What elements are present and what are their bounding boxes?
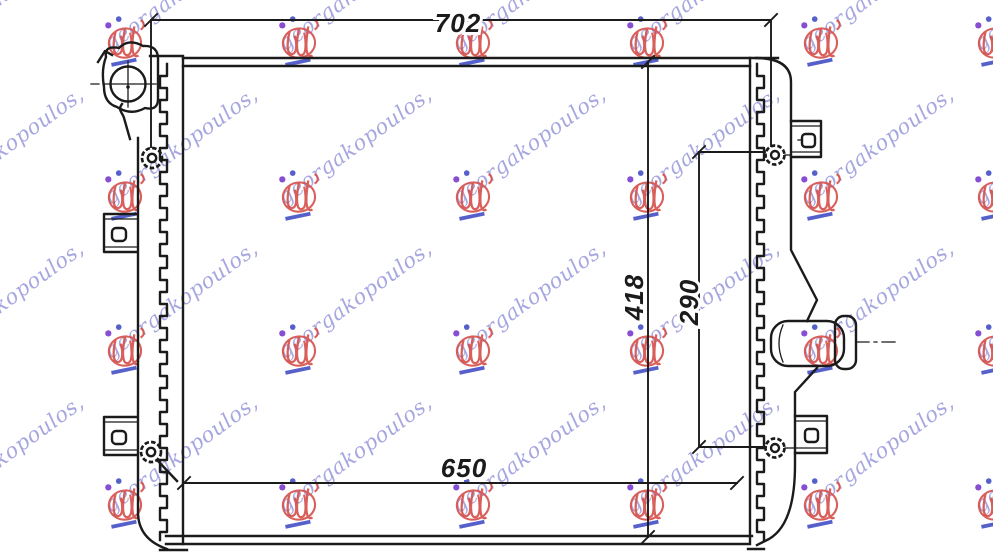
bolt-hole-top-right (766, 146, 792, 165)
bracket-hole (112, 431, 126, 444)
bracket-bottom-right (795, 416, 827, 453)
bracket-hole (802, 134, 815, 147)
dim-overall-width: 702 (145, 8, 777, 147)
dim-core-height: 418 (619, 56, 654, 543)
bracket-middle-left (104, 214, 137, 252)
filler-neck (91, 42, 158, 139)
left-tank (91, 42, 183, 549)
bolt-hole-bottom-left (141, 442, 177, 481)
radiator-diagram: 702 650 418 290 (0, 0, 993, 553)
bracket-bottom-left (104, 417, 137, 455)
dim-label-core-width: 650 (441, 453, 487, 483)
bracket-hole (805, 429, 818, 442)
dim-core-width: 650 (178, 453, 743, 489)
outlet-pipe (771, 316, 856, 369)
product-technical-drawing: georgakopoulos,georgakopoulos,georgakopo… (0, 0, 993, 553)
dim-label-mount-span: 290 (674, 279, 704, 326)
dim-label-core-height: 418 (619, 274, 649, 321)
right-tank (756, 58, 900, 545)
bracket-top-right (791, 121, 821, 157)
dim-mount-span: 290 (674, 146, 766, 453)
dim-label-overall-width: 702 (435, 8, 481, 38)
right-serrated-edge (757, 64, 764, 540)
bracket-hole (112, 228, 126, 241)
bolt-hole-bottom-right (766, 439, 796, 458)
